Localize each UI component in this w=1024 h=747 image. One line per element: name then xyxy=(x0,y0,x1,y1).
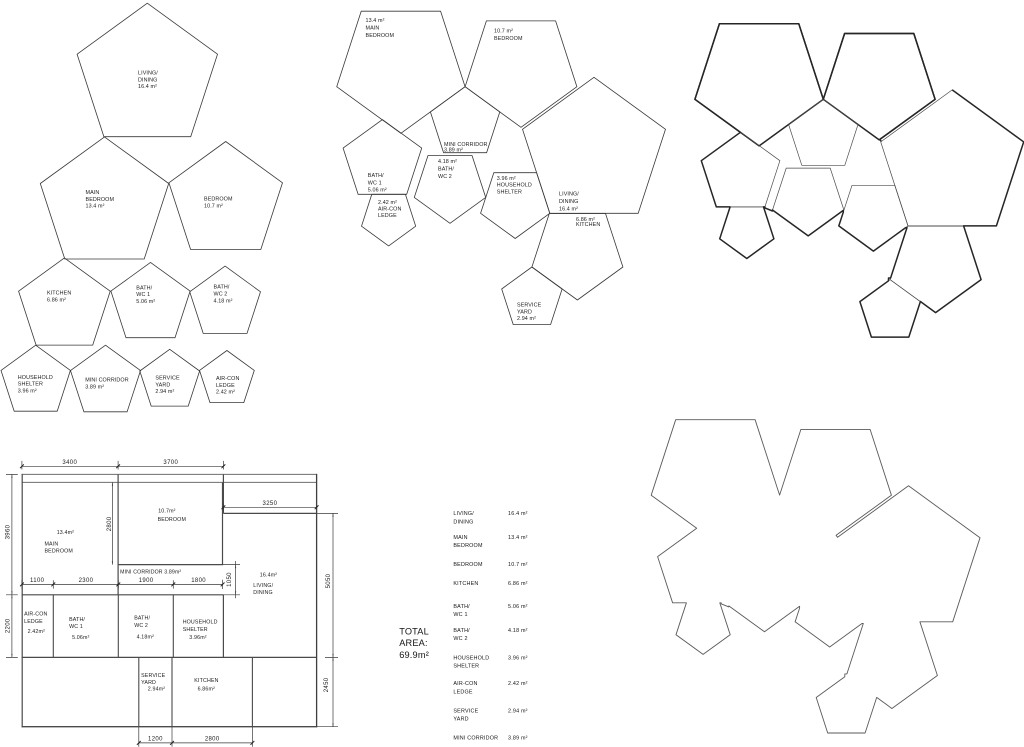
svg-text:BATH/WC 1: BATH/WC 1 xyxy=(69,617,85,630)
svg-text:1200: 1200 xyxy=(148,736,163,742)
svg-text:1100: 1100 xyxy=(30,578,45,584)
svg-text:2300: 2300 xyxy=(79,578,94,584)
svg-text:16.4m²: 16.4m² xyxy=(260,573,277,579)
svg-text:BATH/WC 15.06 m²: BATH/WC 15.06 m² xyxy=(136,285,155,305)
svg-text:4.18m²: 4.18m² xyxy=(137,634,154,640)
svg-text:16.4 m²: 16.4 m² xyxy=(508,511,528,517)
svg-text:2200: 2200 xyxy=(5,618,11,633)
svg-text:BATH/WC 15.06 m²: BATH/WC 15.06 m² xyxy=(368,173,387,194)
svg-text:TOTALAREA:69.9m²: TOTALAREA:69.9m² xyxy=(399,627,429,660)
svg-text:2800: 2800 xyxy=(205,736,220,742)
svg-text:1800: 1800 xyxy=(191,578,206,584)
svg-text:HOUSEHOLDSHELTER: HOUSEHOLDSHELTER xyxy=(453,655,489,669)
svg-text:AIR-CONLEDGE2.42 m²: AIR-CONLEDGE2.42 m² xyxy=(216,376,239,396)
svg-text:3700: 3700 xyxy=(163,460,178,466)
svg-text:BATH/WC 2: BATH/WC 2 xyxy=(134,616,150,629)
svg-text:3960: 3960 xyxy=(5,524,11,539)
svg-text:2.42 m²AIR-CONLEDGE: 2.42 m²AIR-CONLEDGE xyxy=(378,200,401,219)
svg-text:10.7 m²: 10.7 m² xyxy=(508,562,528,568)
svg-text:LIVING/DINING: LIVING/DINING xyxy=(253,583,273,596)
svg-text:BEDROOM: BEDROOM xyxy=(158,517,186,523)
svg-text:6.86 m²: 6.86 m² xyxy=(508,581,528,587)
svg-text:SERVICEYARD2.94 m²: SERVICEYARD2.94 m² xyxy=(517,303,542,322)
svg-text:13.4 m²: 13.4 m² xyxy=(508,535,528,541)
svg-text:SERVICEYARD2.94 m²: SERVICEYARD2.94 m² xyxy=(155,375,180,395)
svg-text:13.4m²: 13.4m² xyxy=(57,530,74,536)
svg-text:2.42m²: 2.42m² xyxy=(28,629,45,635)
svg-text:5050: 5050 xyxy=(326,573,332,588)
svg-text:SERVICEYARD: SERVICEYARD xyxy=(141,673,166,686)
svg-text:LIVING/DINING: LIVING/DINING xyxy=(453,511,474,525)
svg-text:1900: 1900 xyxy=(139,578,154,584)
svg-text:KITCHEN6.86 m²: KITCHEN6.86 m² xyxy=(47,291,71,304)
svg-text:10.7 m²BEDROOM: 10.7 m²BEDROOM xyxy=(494,28,523,42)
svg-text:4.18 m²BATH/WC 2: 4.18 m²BATH/WC 2 xyxy=(438,159,457,180)
svg-text:2.94 m²: 2.94 m² xyxy=(508,708,528,714)
svg-text:MINI CORRIDOR 3.89m²: MINI CORRIDOR 3.89m² xyxy=(120,570,181,576)
svg-text:3.96 m²: 3.96 m² xyxy=(508,655,528,661)
svg-text:6.86 m²KITCHEN: 6.86 m²KITCHEN xyxy=(576,217,600,228)
svg-text:MAINBEDROOM: MAINBEDROOM xyxy=(453,535,483,549)
svg-text:LIVING/DINING16.4 m²: LIVING/DINING16.4 m² xyxy=(138,71,158,91)
svg-text:3400: 3400 xyxy=(62,460,77,466)
svg-text:LIVING/DINING16.4 m²: LIVING/DINING16.4 m² xyxy=(559,192,579,213)
svg-text:2.42 m²: 2.42 m² xyxy=(508,681,528,687)
svg-text:10.7m²: 10.7m² xyxy=(158,509,175,515)
svg-text:5.06 m²: 5.06 m² xyxy=(508,604,528,610)
svg-text:KITCHEN: KITCHEN xyxy=(453,581,478,587)
svg-text:3.96 m²HOUSEHOLDSHELTER: 3.96 m²HOUSEHOLDSHELTER xyxy=(497,176,532,195)
svg-text:1050: 1050 xyxy=(227,572,233,587)
svg-text:5.06m²: 5.06m² xyxy=(72,635,89,641)
svg-text:3250: 3250 xyxy=(263,501,278,507)
svg-text:KITCHEN: KITCHEN xyxy=(194,678,218,684)
svg-text:AIR-CONLEDGE: AIR-CONLEDGE xyxy=(453,681,477,695)
svg-text:2800: 2800 xyxy=(107,516,113,531)
svg-text:4.18 m²: 4.18 m² xyxy=(508,628,528,634)
svg-text:BATH/WC 1: BATH/WC 1 xyxy=(453,604,470,618)
svg-text:2.94m²: 2.94m² xyxy=(148,686,165,692)
svg-text:6.86m²: 6.86m² xyxy=(198,686,215,692)
svg-text:BATH/WC 2: BATH/WC 2 xyxy=(453,628,470,642)
svg-text:3.96m²: 3.96m² xyxy=(189,635,206,641)
svg-text:HOUSEHOLDSHELTER: HOUSEHOLDSHELTER xyxy=(183,620,218,633)
svg-text:MINI CORRIDOR: MINI CORRIDOR xyxy=(453,736,498,742)
svg-text:MAINBEDROOM: MAINBEDROOM xyxy=(45,541,73,554)
svg-text:HOUSEHOLDSHELTER3.96 m²: HOUSEHOLDSHELTER3.96 m² xyxy=(18,375,53,395)
svg-text:BEDROOM: BEDROOM xyxy=(453,562,483,568)
svg-text:MINI CORRIDOR3.89 m²: MINI CORRIDOR3.89 m² xyxy=(444,142,488,154)
svg-text:13.4 m²MAINBEDROOM: 13.4 m²MAINBEDROOM xyxy=(366,18,395,39)
svg-text:BATH/WC 24.18 m²: BATH/WC 24.18 m² xyxy=(214,285,233,305)
svg-text:AIR-CONLEDGE: AIR-CONLEDGE xyxy=(24,612,47,625)
svg-text:BEDROOM10.7 m²: BEDROOM10.7 m² xyxy=(204,197,233,210)
svg-text:2450: 2450 xyxy=(324,677,330,692)
svg-text:3.89 m²: 3.89 m² xyxy=(508,736,528,742)
svg-text:MINI CORRIDOR3.89 m²: MINI CORRIDOR3.89 m² xyxy=(85,378,129,391)
svg-text:SERVICEYARD: SERVICEYARD xyxy=(453,708,478,722)
svg-text:MAINBEDROOM13.4 m²: MAINBEDROOM13.4 m² xyxy=(86,190,115,210)
